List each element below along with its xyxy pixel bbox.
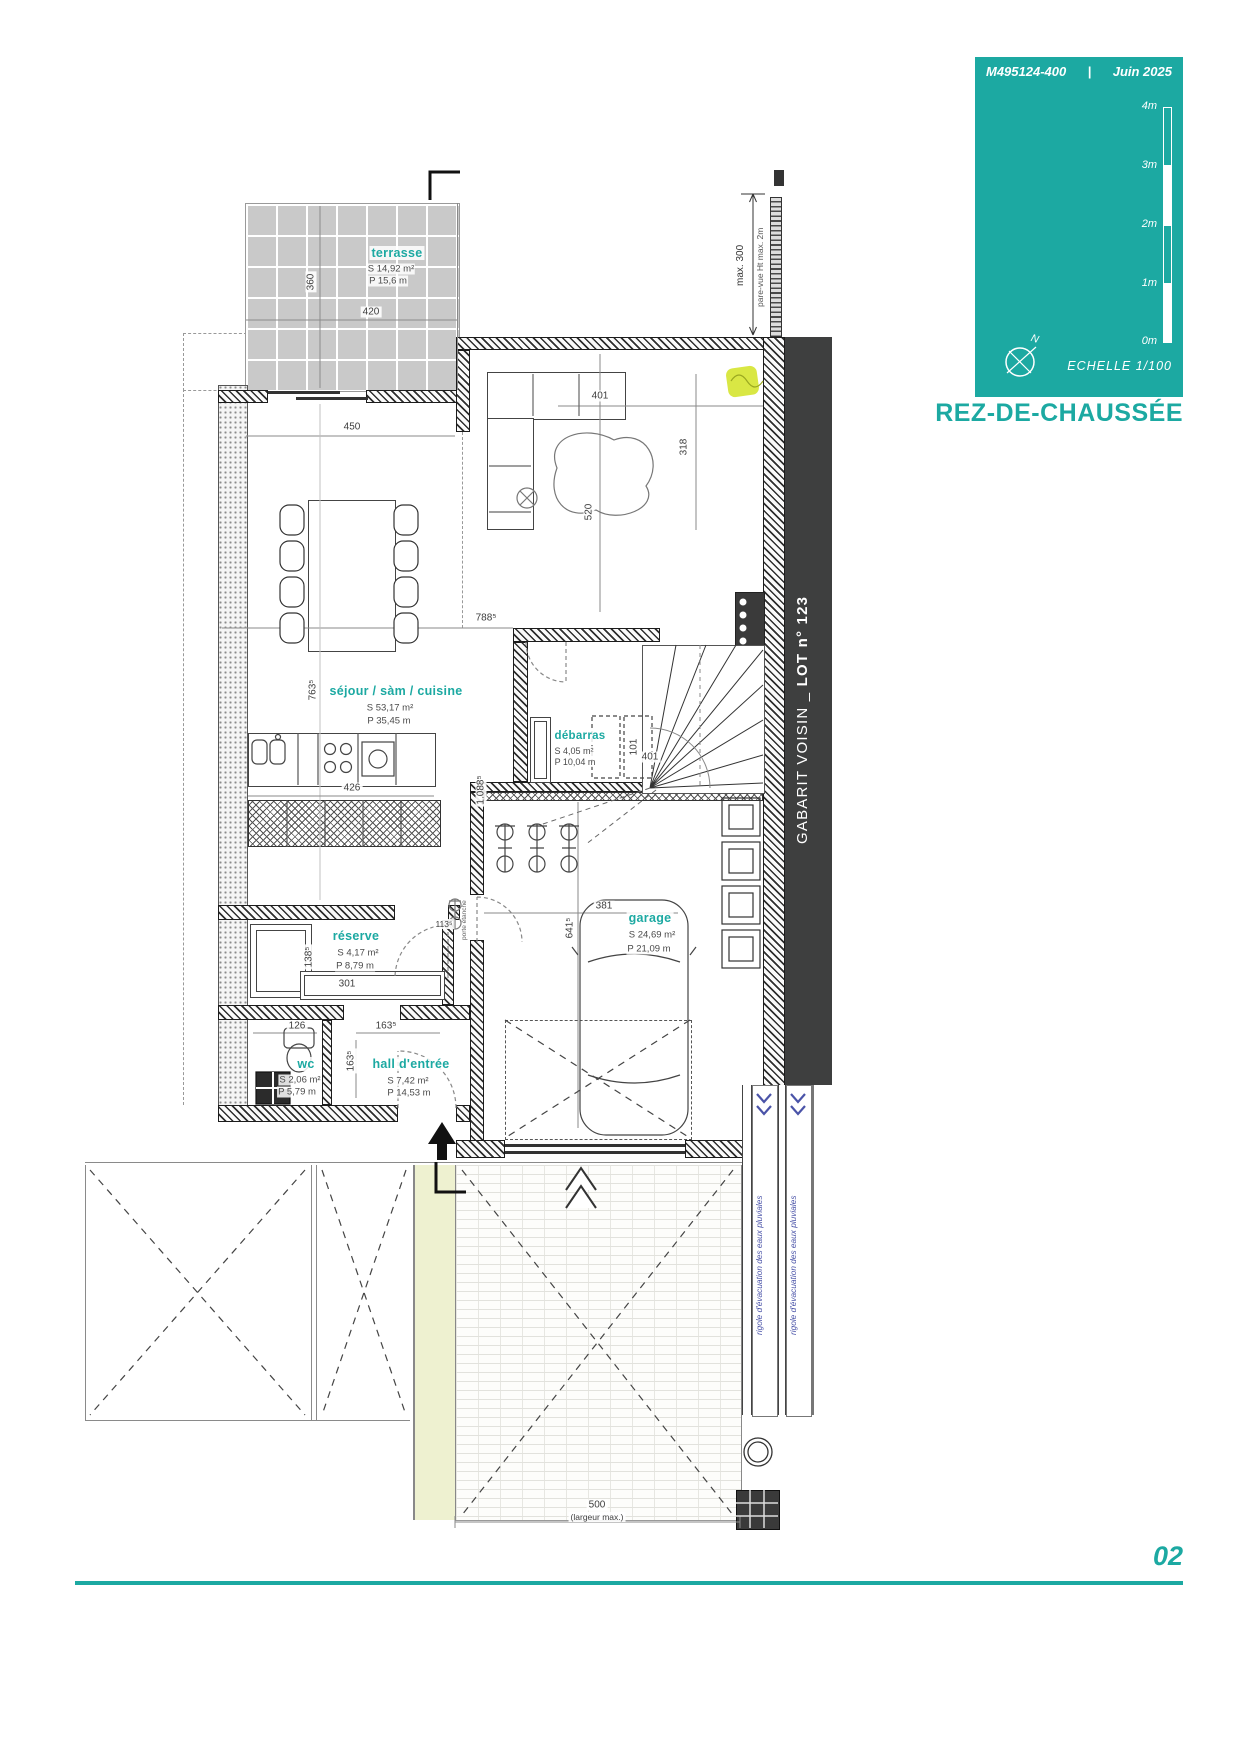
- dim-lounge-depth2: 520: [584, 502, 595, 523]
- room-surface: S 7,42 m²: [386, 1076, 429, 1087]
- wardrobe-row: [248, 800, 441, 847]
- room-perimeter: P 15,6 m: [368, 276, 408, 287]
- room-label-debarras: débarras: [553, 730, 608, 742]
- doc-date: Juin 2025: [1113, 64, 1172, 79]
- room-perimeter: P 8,79 m: [335, 961, 375, 972]
- wall: [456, 337, 785, 350]
- channel-divider: [778, 1085, 786, 1415]
- page-number: 02: [1083, 1541, 1183, 1572]
- wall: [470, 940, 484, 1158]
- dim-stair-width: 101: [629, 737, 640, 758]
- workbench-inner: [304, 975, 441, 996]
- terrace-edge: [457, 203, 458, 390]
- channel-edge: [742, 1085, 752, 1415]
- dining-table: [308, 500, 396, 652]
- scale-bar-segment: [1163, 107, 1172, 166]
- stairs-box: [642, 645, 765, 794]
- pare-vue-label: pare-vue Ht max. 2m: [755, 192, 767, 342]
- boundary-line: [183, 389, 184, 1105]
- dim-driveway-note: (largeur max.): [569, 1512, 626, 1522]
- dim-door-width: 113⁵: [433, 919, 454, 929]
- room-label-sejour: séjour / sàm / cuisine: [327, 684, 464, 698]
- open-plan-boundary: [462, 432, 463, 628]
- room-surface: S 24,69 m²: [628, 930, 676, 941]
- kitchen-counter: [248, 733, 436, 787]
- boundary-ghost: [183, 333, 247, 391]
- plot-line: [316, 1165, 317, 1420]
- rigole-label: rigole d'évacuation des eaux pluviales: [788, 1120, 809, 1410]
- sliding-door: [296, 397, 368, 400]
- room-perimeter: P 35,45 m: [366, 716, 411, 727]
- room-surface: S 14,92 m²: [367, 264, 415, 275]
- tv-cabinet: [735, 592, 765, 648]
- scale-bar-segment: [1163, 225, 1172, 284]
- pare-vue-fence: [770, 197, 782, 337]
- separator: |: [1088, 64, 1092, 79]
- wall: [513, 628, 660, 642]
- entry-arrow-icon: [428, 1122, 456, 1160]
- dim-hall-width: 163⁵: [374, 1021, 399, 1032]
- dim-sejour-width: 450: [342, 422, 363, 433]
- wall: [470, 792, 484, 895]
- gabarit-label: GABARIT VOISIN _ LOT n° 123: [794, 440, 824, 1000]
- title-block-header: M495124-400 | Juin 2025: [975, 57, 1183, 79]
- room-label-reserve: réserve: [331, 929, 382, 943]
- sofa-chaise: [487, 418, 534, 530]
- scale-tick: 1m: [1142, 277, 1157, 289]
- wall-highlight: [725, 365, 760, 398]
- floor-title: REZ-DE-CHAUSSÉE: [775, 399, 1183, 428]
- dim-debarras-width: 401: [640, 752, 661, 763]
- scale-tick: 3m: [1142, 159, 1157, 171]
- room-surface: S 53,17 m²: [366, 703, 414, 714]
- dim-terrasse-depth: 360: [306, 272, 317, 293]
- dim-driveway-width: 500: [587, 1500, 608, 1511]
- wall: [456, 1140, 505, 1158]
- scale-tick: 4m: [1142, 100, 1157, 112]
- terrasse-area: [245, 203, 460, 392]
- room-surface: S 4,17 m²: [336, 948, 379, 959]
- title-block: M495124-400 | Juin 2025 4m 3m 2m 1m 0m N…: [975, 57, 1183, 397]
- gabarit-prefix: GABARIT VOISIN _: [794, 686, 811, 844]
- wall: [456, 1105, 470, 1122]
- dim-unit-width: 788⁵: [474, 613, 499, 624]
- dim-lounge-depth: 318: [679, 437, 690, 458]
- sliding-door: [268, 391, 340, 394]
- driveway-top-line: [85, 1162, 742, 1163]
- reserve-cabinet-inner: [256, 930, 306, 992]
- scale-label: ECHELLE 1/100: [1067, 359, 1172, 373]
- dim-kitchen-width: 426: [342, 783, 363, 794]
- wall: [218, 1005, 344, 1020]
- wall: [322, 1020, 332, 1105]
- wall: [513, 642, 528, 782]
- fence-post: [774, 170, 784, 186]
- plan-sheet: GABARIT VOISIN _ LOT n° 123: [0, 0, 1241, 1754]
- footer-rule: [75, 1581, 1183, 1585]
- doc-reference: M495124-400: [986, 64, 1066, 79]
- plot-line: [85, 1420, 410, 1421]
- plot-line: [85, 1165, 86, 1420]
- scale-bar-segment: [1163, 284, 1172, 343]
- dim-garage-depth: 641⁵: [565, 916, 576, 941]
- plot-line: [311, 1165, 312, 1420]
- channel-edge: [812, 1085, 814, 1415]
- drain-grate: [736, 1490, 780, 1530]
- dim-wc-width: 126: [287, 1021, 308, 1032]
- gabarit-lot: LOT n° 123: [794, 596, 811, 687]
- room-perimeter: P 5,79 m: [277, 1087, 317, 1098]
- wall: [218, 905, 395, 920]
- wall: [400, 1005, 470, 1020]
- dim-reserve-depth: 138⁵: [304, 945, 315, 970]
- wall: [456, 350, 470, 432]
- wall: [763, 337, 785, 1158]
- porte-etanche-label: porte étanche: [461, 885, 470, 955]
- scale-bar-segment: [1163, 166, 1172, 225]
- debarras-cabinet-inner: [534, 721, 547, 779]
- room-label-garage: garage: [627, 911, 674, 925]
- dim-terrasse-width: 420: [361, 307, 382, 318]
- room-surface: S 2,06 m²: [278, 1075, 321, 1086]
- garage-door: [505, 1144, 685, 1147]
- driveway-paving: [455, 1165, 742, 1521]
- wall: [218, 390, 268, 403]
- dim-unit-depth: 1.088⁵: [476, 773, 487, 806]
- dim-fence-height: max. 300: [735, 195, 749, 335]
- rigole-label: rigole d'évacuation des eaux pluviales: [754, 1120, 775, 1410]
- dim-sejour-depth: 763⁵: [308, 678, 319, 703]
- room-label-wc: wc: [295, 1057, 316, 1071]
- garage-door: [505, 1151, 685, 1154]
- room-perimeter: P 14,53 m: [386, 1088, 431, 1099]
- wall: [218, 1105, 398, 1122]
- garage-template: [505, 1020, 692, 1140]
- dim-garage-width: 381: [594, 901, 615, 912]
- room-surface: S 4,05 m²: [553, 746, 594, 756]
- room-perimeter: P 10,04 m: [554, 757, 597, 767]
- grass-strip: [413, 1165, 457, 1520]
- scale-tick: 2m: [1142, 218, 1157, 230]
- wall: [366, 390, 462, 403]
- dim-hall-depth: 163⁵: [346, 1049, 357, 1074]
- compass-icon: [998, 340, 1042, 384]
- wall: [448, 905, 460, 920]
- scale-tick: 0m: [1142, 335, 1157, 347]
- room-label-terrasse: terrasse: [369, 246, 424, 260]
- dim-workbench: 301: [337, 979, 358, 990]
- room-perimeter: P 21,09 m: [626, 944, 671, 955]
- room-label-hall: hall d'entrée: [370, 1057, 451, 1071]
- dim-lounge-width: 401: [590, 391, 611, 402]
